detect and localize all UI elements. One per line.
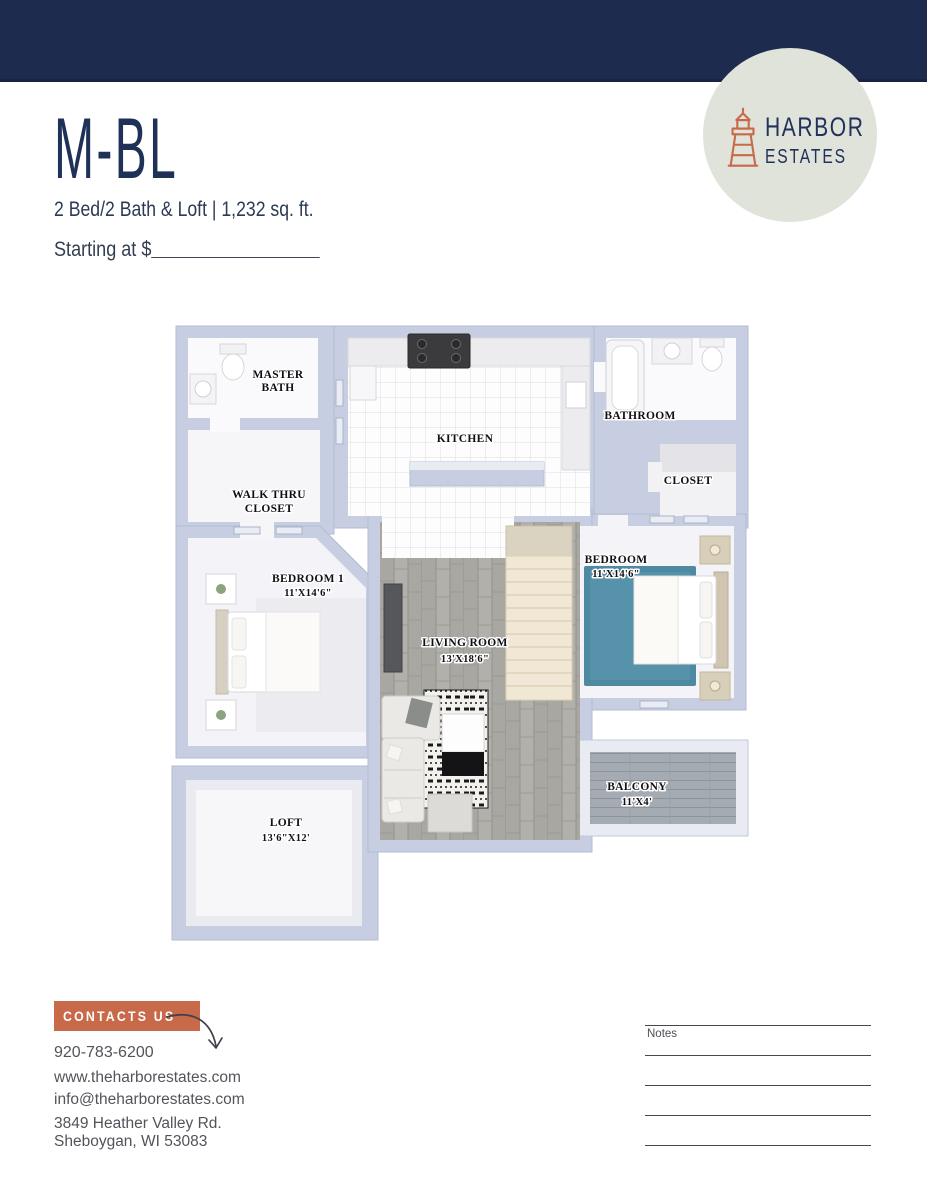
label-walk-thru-closet: WALK THRU: [232, 489, 306, 501]
label-bedroom-2: BEDROOM: [585, 554, 648, 566]
contacts-us-label: CONTACTS US: [63, 1008, 175, 1024]
svg-text:13'X18'6": 13'X18'6": [441, 654, 489, 665]
label-loft: LOFT: [270, 817, 303, 829]
stove-icon: [408, 334, 470, 368]
floor-plan: MASTER BATH WALK THRU CLOSET BEDROOM 1 1…: [170, 322, 750, 942]
flyer-page: HARBOR ESTATES M-BL 2 Bed/2 Bath & Loft …: [0, 0, 927, 1200]
svg-text:11'X14'6": 11'X14'6": [284, 588, 332, 599]
label-bedroom-1: BEDROOM 1: [272, 573, 344, 585]
notes-rule-line: [645, 1085, 871, 1086]
page-title: M-BL: [54, 106, 178, 192]
logo-name-estates: ESTATES: [765, 146, 864, 169]
lighthouse-icon: [724, 106, 762, 174]
svg-text:11'X14'6": 11'X14'6": [592, 569, 640, 580]
svg-text:BATH: BATH: [262, 382, 295, 394]
notes-rule-line: [645, 1115, 871, 1116]
website-link[interactable]: www.theharborestates.com: [54, 1068, 245, 1087]
plan-subtitle: 2 Bed/2 Bath & Loft | 1,232 sq. ft.: [54, 198, 314, 222]
starting-at-label: Starting at $: [54, 238, 151, 261]
address-line-1: 3849 Heather Valley Rd.: [54, 1115, 245, 1133]
phone-number[interactable]: 920-783-6200: [54, 1043, 245, 1062]
label-kitchen: KITCHEN: [437, 433, 494, 445]
svg-text:CLOSET: CLOSET: [245, 503, 293, 515]
email-link[interactable]: info@theharborestates.com: [54, 1090, 245, 1109]
starting-price-row: Starting at $: [54, 238, 320, 262]
label-master-bath: MASTER: [252, 369, 303, 381]
notes-rule-line: [645, 1055, 871, 1056]
label-balcony: BALCONY: [607, 781, 667, 793]
price-blank-line: [151, 238, 320, 258]
label-bathroom: BATHROOM: [604, 410, 675, 422]
label-living-room: LIVING ROOM: [422, 637, 507, 649]
logo-name-harbor: HARBOR: [765, 112, 864, 143]
notes-rule-line: [645, 1025, 871, 1026]
notes-section: Notes: [645, 1016, 871, 1156]
address-line-2: Sheboygan, WI 53083: [54, 1133, 245, 1151]
svg-text:13'6"X12': 13'6"X12': [262, 833, 310, 844]
svg-text:11'X4': 11'X4': [622, 797, 652, 808]
logo: HARBOR ESTATES: [703, 48, 877, 222]
staircase: [506, 526, 572, 700]
notes-label: Notes: [647, 1028, 677, 1040]
logo-wordmark: HARBOR ESTATES: [765, 112, 893, 169]
contact-info: 920-783-6200 www.theharborestates.com in…: [54, 1043, 245, 1150]
notes-rule-line: [645, 1145, 871, 1146]
label-closet: CLOSET: [664, 475, 712, 487]
